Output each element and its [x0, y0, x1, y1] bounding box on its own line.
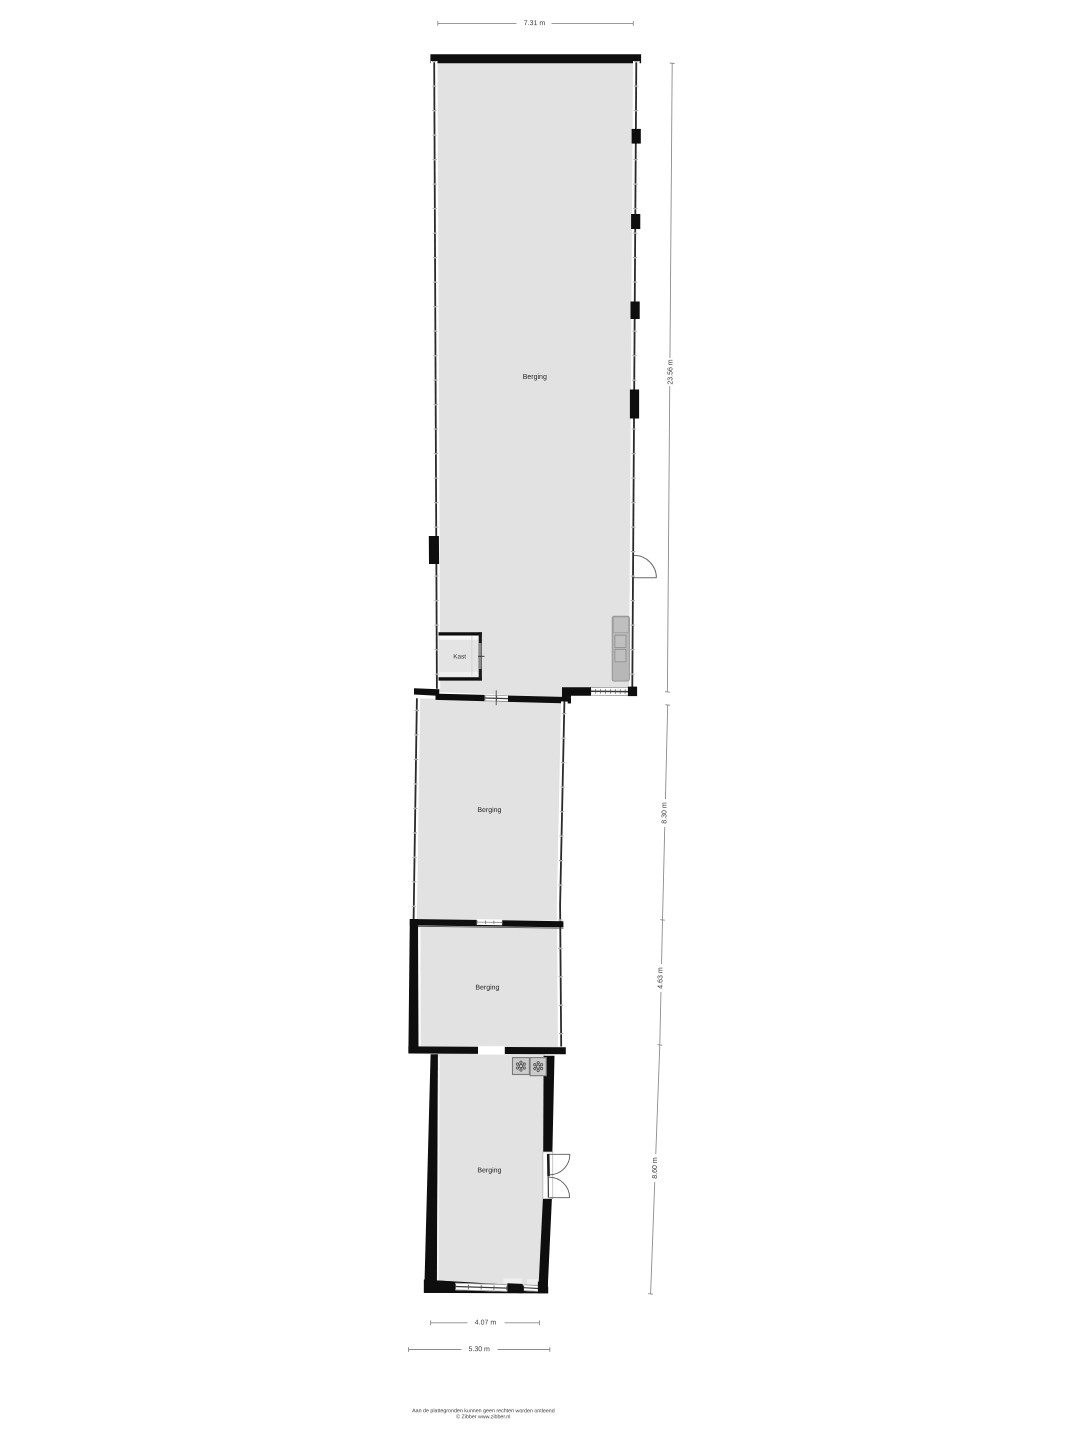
svg-text:Kast: Kast: [453, 653, 466, 660]
svg-text:4.07 m: 4.07 m: [475, 1319, 497, 1326]
svg-text:8.30 m: 8.30 m: [662, 802, 669, 824]
svg-text:5.30 m: 5.30 m: [468, 1346, 490, 1353]
svg-text:4.63 m: 4.63 m: [658, 967, 665, 989]
svg-text:Berging: Berging: [475, 984, 499, 991]
svg-text:Berging: Berging: [477, 1167, 501, 1174]
svg-text:Berging: Berging: [477, 807, 501, 814]
svg-text:23.56 m: 23.56 m: [667, 359, 674, 384]
svg-text:7.31 m: 7.31 m: [524, 20, 546, 27]
svg-text:Berging: Berging: [523, 374, 547, 381]
svg-text:© Zibber www.zibber.nl: © Zibber www.zibber.nl: [456, 1413, 510, 1420]
svg-text:8.60 m: 8.60 m: [652, 1157, 659, 1179]
